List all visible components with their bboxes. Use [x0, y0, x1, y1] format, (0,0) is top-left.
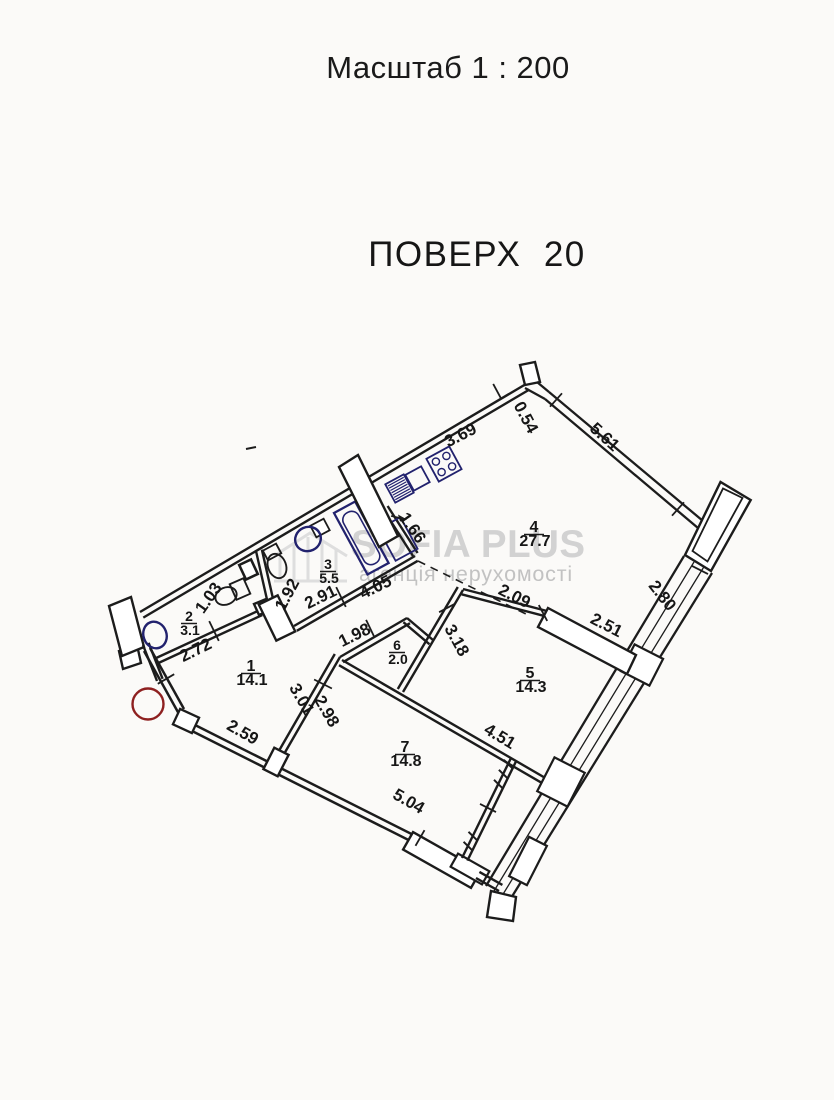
- svg-text:Масштаб 1 : 200: Масштаб 1 : 200: [326, 50, 570, 85]
- svg-text:3.18: 3.18: [440, 621, 473, 659]
- svg-text:14.1: 14.1: [236, 672, 267, 689]
- svg-text:4.51: 4.51: [481, 720, 519, 753]
- svg-text:0.54: 0.54: [510, 398, 543, 437]
- svg-text:27.7: 27.7: [519, 533, 550, 550]
- svg-text:5.04: 5.04: [390, 785, 429, 818]
- svg-text:2.59: 2.59: [224, 716, 262, 749]
- svg-text:3.69: 3.69: [441, 419, 479, 451]
- svg-text:ПОВЕРХ 20: ПОВЕРХ 20: [368, 235, 586, 274]
- svg-text:1.03: 1.03: [191, 579, 226, 617]
- svg-text:3.1: 3.1: [180, 622, 200, 638]
- svg-text:2.98: 2.98: [310, 692, 343, 730]
- svg-text:2.80: 2.80: [645, 577, 680, 615]
- svg-text:2.0: 2.0: [388, 651, 408, 667]
- svg-text:14.3: 14.3: [515, 679, 546, 696]
- svg-text:14.8: 14.8: [390, 753, 421, 770]
